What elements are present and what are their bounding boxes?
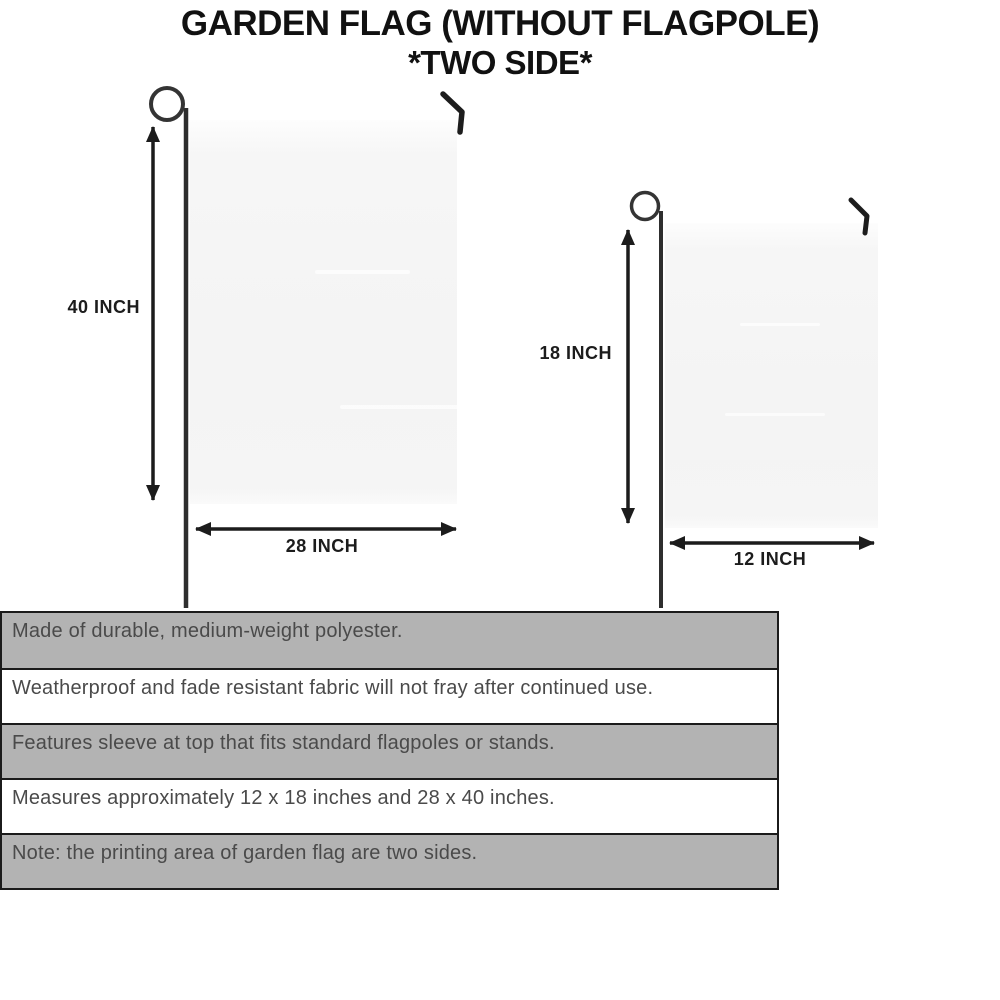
small-flag-canvas	[665, 223, 878, 528]
large-flag-pole-loop-icon	[151, 88, 183, 120]
spec-row: Note: the printing area of garden flag a…	[2, 833, 777, 888]
fabric-crease	[740, 323, 820, 326]
fabric-crease	[340, 405, 460, 409]
spec-row: Weatherproof and fade resistant fabric w…	[2, 668, 777, 723]
spec-row: Measures approximately 12 x 18 inches an…	[2, 778, 777, 833]
fabric-crease	[315, 270, 410, 274]
spec-row: Made of durable, medium-weight polyester…	[2, 613, 777, 668]
small-flag-width-label: 12 INCH	[670, 549, 870, 570]
small-flag-pole-loop-icon	[632, 193, 659, 220]
large-flag-canvas	[190, 120, 457, 504]
fabric-crease	[725, 413, 825, 416]
large-flag-width-label: 28 INCH	[222, 536, 422, 557]
product-size-chart: GARDEN FLAG (WITHOUT FLAGPOLE) *TWO SIDE…	[0, 0, 1000, 1000]
spec-table: Made of durable, medium-weight polyester…	[0, 611, 779, 890]
small-flag-height-label: 18 INCH	[510, 343, 612, 364]
spec-row: Features sleeve at top that fits standar…	[2, 723, 777, 778]
flag-size-diagram: 40 INCH 28 INCH 18 INCH 12 INCH	[0, 0, 1000, 612]
large-flag-height-label: 40 INCH	[38, 297, 140, 318]
